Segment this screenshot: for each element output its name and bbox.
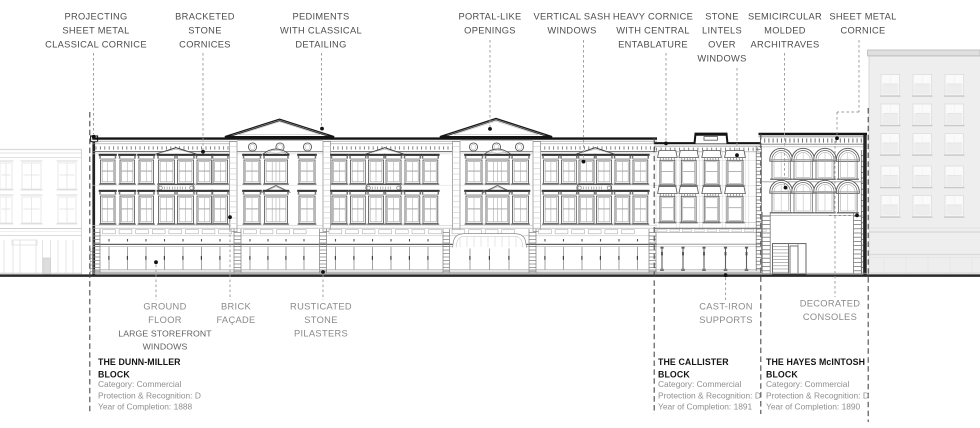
svg-text:HEAVY CORNICEWITH CENTRALENTAB: HEAVY CORNICEWITH CENTRALENTABLATURE: [613, 12, 693, 50]
